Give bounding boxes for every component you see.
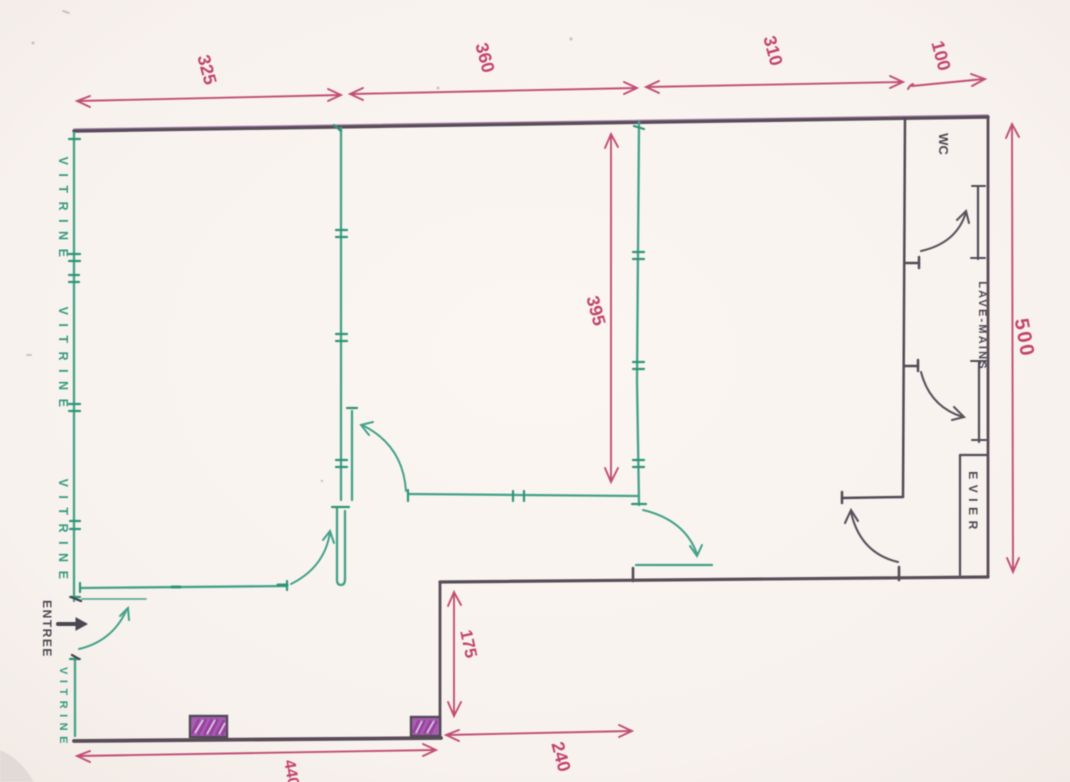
svg-text:ENTREE: ENTREE [40,600,54,658]
svg-text:VITRINE: VITRINE [56,307,70,416]
svg-text:VITRINE: VITRINE [56,479,70,588]
svg-text:VITRINE: VITRINE [56,157,70,266]
svg-text:LAVE-MAINS: LAVE-MAINS [976,281,988,371]
svg-text:VITRINE: VITRINE [57,667,69,749]
svg-text:WC: WC [936,133,951,155]
svg-text:440: 440 [280,759,301,782]
svg-text:EVIER: EVIER [966,471,980,535]
